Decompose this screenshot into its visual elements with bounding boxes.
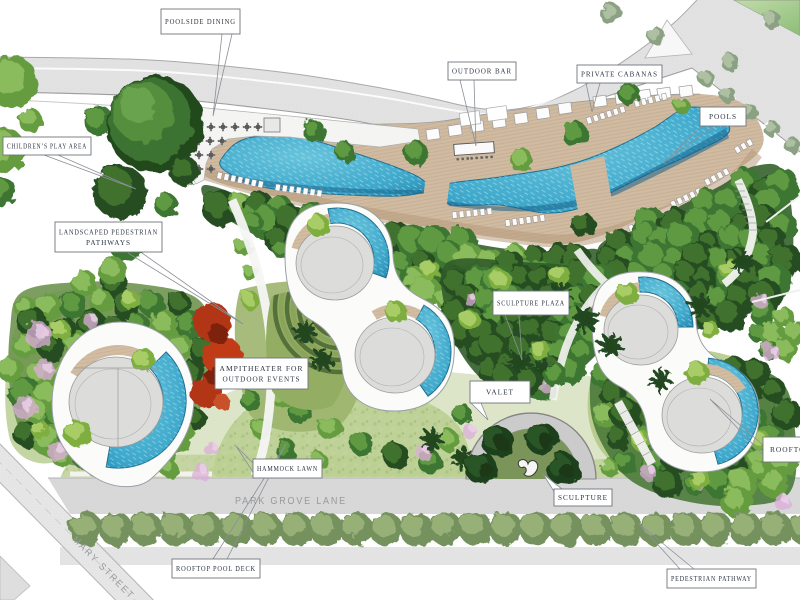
svg-text:ROOFTOP POOL DECK: ROOFTOP POOL DECK	[770, 445, 800, 454]
svg-text:PEDESTRIAN PATHWAY: PEDESTRIAN PATHWAY	[671, 574, 752, 583]
svg-text:HAMMOCK LAWN: HAMMOCK LAWN	[257, 464, 318, 473]
svg-text:OUTDOOR EVENTS: OUTDOOR EVENTS	[223, 374, 301, 383]
svg-text:SCULPTURE PLAZA: SCULPTURE PLAZA	[497, 299, 565, 308]
svg-text:PRIVATE CABANAS: PRIVATE CABANAS	[581, 70, 658, 79]
svg-text:AMPITHEATER FOR: AMPITHEATER FOR	[220, 364, 304, 373]
svg-text:LANDSCAPED PEDESTRIAN: LANDSCAPED PEDESTRIAN	[59, 227, 158, 236]
svg-text:POOLS: POOLS	[709, 112, 737, 121]
svg-text:PATHWAYS: PATHWAYS	[86, 238, 131, 247]
svg-text:CHILDREN’S PLAY AREA: CHILDREN’S PLAY AREA	[7, 142, 87, 151]
svg-text:VALET: VALET	[486, 388, 514, 397]
svg-text:POOLSIDE DINING: POOLSIDE DINING	[165, 17, 236, 26]
svg-text:SCULPTURE: SCULPTURE	[558, 493, 608, 502]
svg-text:OUTDOOR BAR: OUTDOOR BAR	[452, 67, 512, 76]
svg-text:ROOFTOP POOL DECK: ROOFTOP POOL DECK	[176, 564, 256, 573]
